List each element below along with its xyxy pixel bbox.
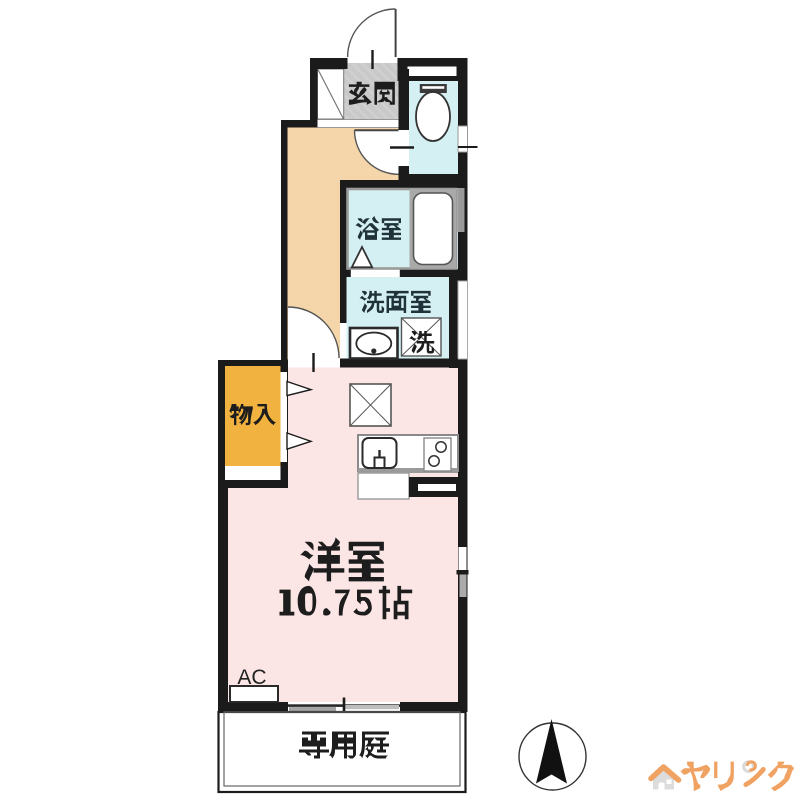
svg-text:AC: AC [237,666,266,689]
